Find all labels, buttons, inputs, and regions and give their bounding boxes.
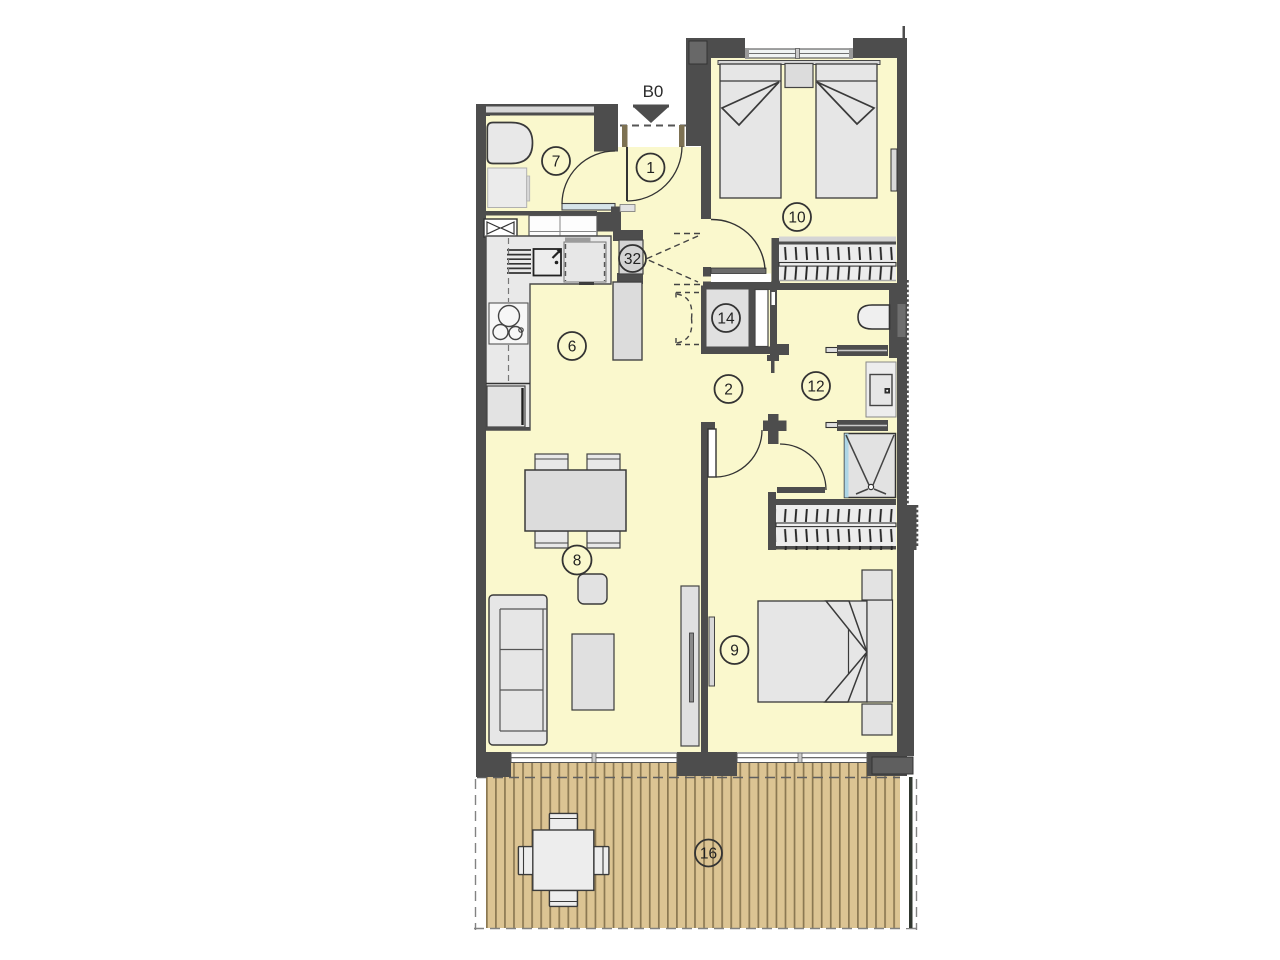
svg-text:9: 9 [730, 643, 739, 660]
svg-text:B0: B0 [643, 82, 664, 101]
svg-text:2: 2 [724, 382, 733, 399]
svg-text:16: 16 [700, 846, 717, 863]
svg-text:6: 6 [568, 339, 577, 356]
svg-text:14: 14 [717, 311, 735, 328]
svg-text:32: 32 [624, 251, 641, 268]
svg-text:7: 7 [552, 154, 561, 171]
svg-text:8: 8 [573, 553, 582, 570]
svg-text:1: 1 [646, 160, 655, 177]
svg-text:10: 10 [788, 210, 806, 227]
svg-text:12: 12 [807, 379, 824, 396]
